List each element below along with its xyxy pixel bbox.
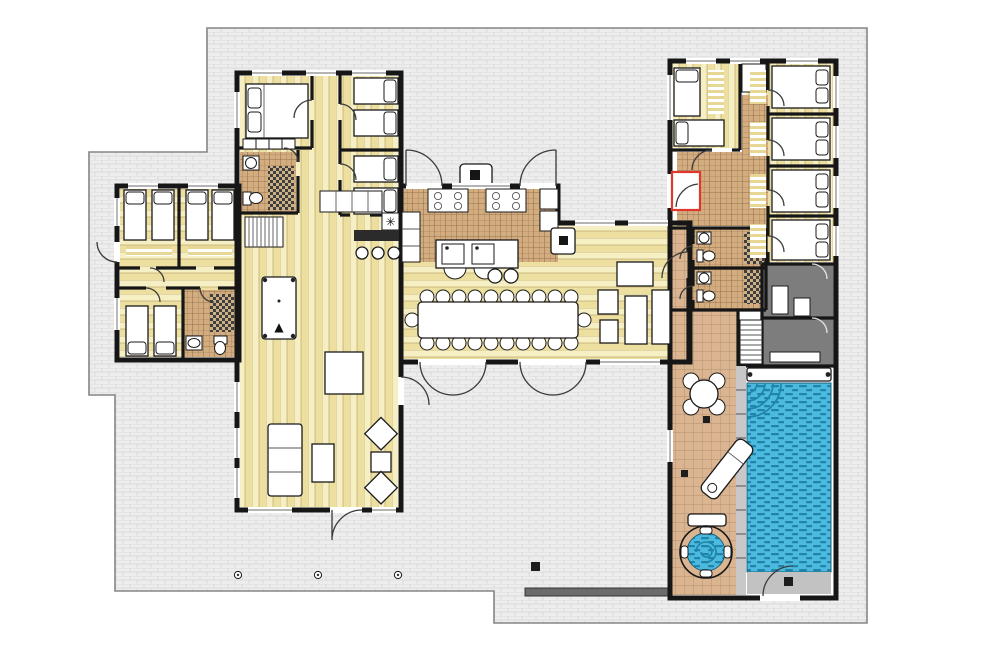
double-bed <box>772 170 830 212</box>
striped-rug <box>750 122 766 156</box>
garden-post <box>314 571 321 578</box>
stairs-down <box>740 320 762 364</box>
single-bed <box>126 306 148 356</box>
single-bed <box>152 190 174 240</box>
floor-plan-canvas: ✳ ▲ <box>0 0 1000 666</box>
toilet <box>697 250 715 262</box>
garden-wall <box>525 588 673 596</box>
dining-chair <box>577 313 591 327</box>
round-table <box>690 380 718 408</box>
striped-rug <box>750 224 766 258</box>
dining-chair <box>405 313 419 327</box>
coffee-table <box>312 444 334 482</box>
single-bed <box>674 68 700 116</box>
single-bed <box>354 110 398 136</box>
deck-post <box>703 416 710 423</box>
single-bed <box>124 190 146 240</box>
pool-rim <box>736 366 746 595</box>
toilet <box>214 336 227 355</box>
single-bed <box>354 156 398 182</box>
fireplace-stove <box>551 228 575 254</box>
stove-box: ✳ <box>382 213 399 230</box>
bar-stool <box>372 247 384 259</box>
bar-counter <box>354 230 399 241</box>
dining-table <box>418 302 578 338</box>
stove-glyph: ✳ <box>385 215 395 229</box>
kitchenette-counter <box>320 191 382 212</box>
floor-west-shower-check <box>210 294 234 332</box>
single-bed <box>186 190 208 240</box>
striped-rug <box>708 70 724 114</box>
floor-central-shower-check <box>268 166 294 210</box>
garden-post <box>394 571 401 578</box>
billiard-rack-glyph: ▲ <box>274 320 284 334</box>
hot-tub-seat <box>700 527 712 534</box>
toilet <box>243 192 263 205</box>
swimming-pool-water <box>747 383 831 572</box>
bar-stool <box>388 247 400 259</box>
garden-post <box>234 571 241 578</box>
billiard-table: ▲ <box>262 277 296 339</box>
armchair <box>600 320 618 343</box>
pool-platform <box>747 572 831 594</box>
pool-cover-roller <box>747 368 831 381</box>
bathroom-sink <box>697 272 711 284</box>
hot-tub <box>680 526 732 578</box>
tv-table <box>325 352 363 394</box>
double-bed <box>772 220 830 260</box>
bathroom-sink <box>697 232 711 244</box>
sofa <box>652 290 670 344</box>
double-bed <box>772 66 830 108</box>
armchair <box>617 262 653 286</box>
terrace-post-block <box>531 562 540 571</box>
sofa <box>268 424 302 496</box>
entry-door-red <box>672 172 700 210</box>
stool-table <box>504 269 518 283</box>
sofa <box>625 296 647 344</box>
striped-rug <box>188 246 232 256</box>
hot-tub-seat <box>681 546 688 558</box>
double-bed <box>772 118 830 160</box>
kitchen-cabinet <box>402 212 420 262</box>
single-bed <box>212 190 234 240</box>
stool-table <box>488 269 502 283</box>
single-bed <box>674 120 724 146</box>
armchair <box>598 290 618 314</box>
single-bed <box>154 306 176 356</box>
wardrobe <box>243 139 295 149</box>
stairs <box>245 217 283 247</box>
cooktop <box>486 189 526 212</box>
floor-plan-page: ✳ ▲ <box>0 0 1000 666</box>
bathroom-sink <box>186 336 202 350</box>
hot-tub-seat <box>700 570 712 577</box>
striped-rug <box>750 70 766 104</box>
hot-tub-seat <box>724 546 731 558</box>
side-table <box>371 452 391 472</box>
striped-rug <box>126 246 172 256</box>
deck-bench <box>688 514 726 526</box>
single-bed <box>354 78 398 104</box>
bar-stool <box>356 247 368 259</box>
deck-post <box>681 470 688 477</box>
striped-rug <box>750 174 766 208</box>
bathroom-sink <box>243 156 259 170</box>
double-bed <box>246 84 308 138</box>
cooktop <box>428 189 468 212</box>
toilet <box>697 290 715 302</box>
